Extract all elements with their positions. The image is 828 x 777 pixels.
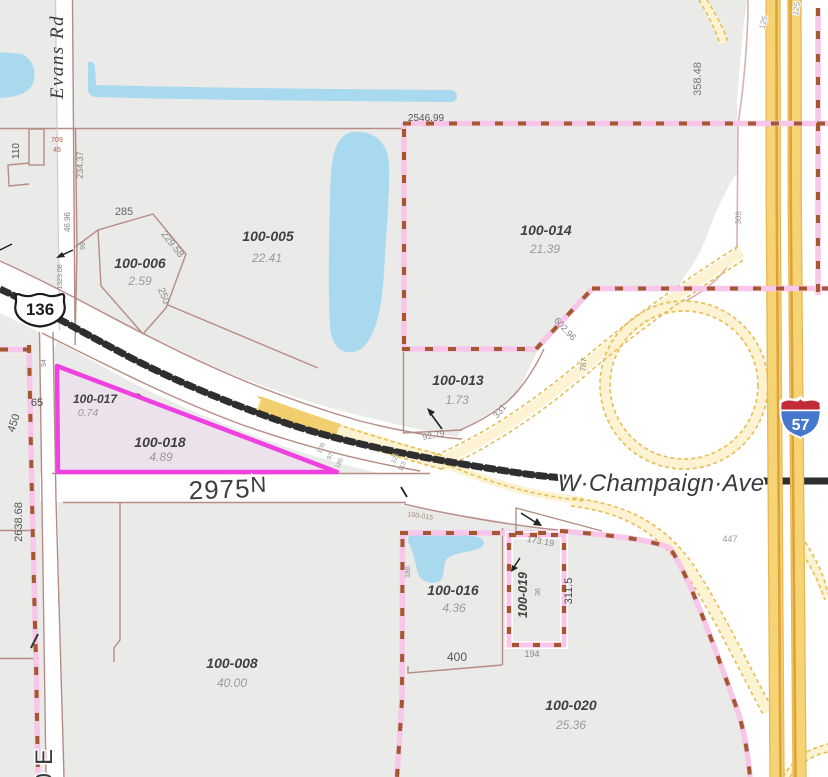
svg-text:311.5: 311.5 [563, 578, 575, 605]
svg-text:300E: 300E [31, 741, 58, 777]
svg-text:1323.08: 1323.08 [57, 264, 64, 289]
svg-text:4.89: 4.89 [149, 450, 173, 464]
svg-text:136: 136 [26, 300, 54, 319]
svg-text:99: 99 [80, 242, 87, 250]
svg-text:100-020: 100-020 [545, 697, 597, 713]
svg-text:234.37: 234.37 [75, 151, 85, 179]
svg-text:94: 94 [41, 359, 48, 367]
svg-text:100-013: 100-013 [432, 372, 484, 388]
svg-text:447: 447 [722, 534, 737, 544]
svg-text:709: 709 [51, 137, 63, 144]
svg-text:4.36: 4.36 [442, 601, 466, 615]
svg-text:1.73: 1.73 [445, 393, 469, 407]
svg-text:36: 36 [535, 588, 542, 596]
svg-text:40.00: 40.00 [217, 676, 247, 690]
svg-text:2638.68: 2638.68 [13, 502, 25, 542]
svg-text:110: 110 [11, 143, 22, 159]
svg-text:46.96: 46.96 [63, 211, 72, 232]
svg-text:787: 787 [578, 357, 588, 372]
svg-text:100-016: 100-016 [427, 582, 479, 598]
svg-text:100-014: 100-014 [520, 222, 572, 238]
svg-text:400: 400 [447, 650, 467, 664]
svg-text:2546.99: 2546.99 [408, 113, 445, 124]
svg-text:45: 45 [53, 147, 61, 154]
svg-text:W·Champaign·Ave: W·Champaign·Ave [558, 470, 765, 497]
svg-text:100-019: 100-019 [516, 572, 530, 618]
svg-text:100-017: 100-017 [73, 392, 118, 406]
svg-text:25.36: 25.36 [555, 718, 586, 732]
svg-text:305: 305 [734, 211, 743, 225]
svg-text:186: 186 [405, 566, 412, 578]
svg-text:100-008: 100-008 [206, 655, 258, 671]
svg-text:100-006: 100-006 [114, 255, 166, 271]
svg-text:358.48: 358.48 [692, 62, 704, 96]
svg-text:285: 285 [115, 206, 133, 218]
svg-text:21.39: 21.39 [529, 242, 560, 256]
svg-text:Evans Rd: Evans Rd [47, 15, 68, 100]
svg-text:22.41: 22.41 [251, 251, 282, 265]
svg-text:0.74: 0.74 [78, 407, 99, 419]
svg-text:194: 194 [524, 649, 539, 659]
svg-text:65: 65 [31, 397, 43, 409]
svg-text:100-018: 100-018 [134, 434, 186, 450]
svg-text:57: 57 [792, 417, 810, 434]
svg-text:2.59: 2.59 [127, 274, 152, 288]
svg-text:100-005: 100-005 [242, 228, 294, 244]
